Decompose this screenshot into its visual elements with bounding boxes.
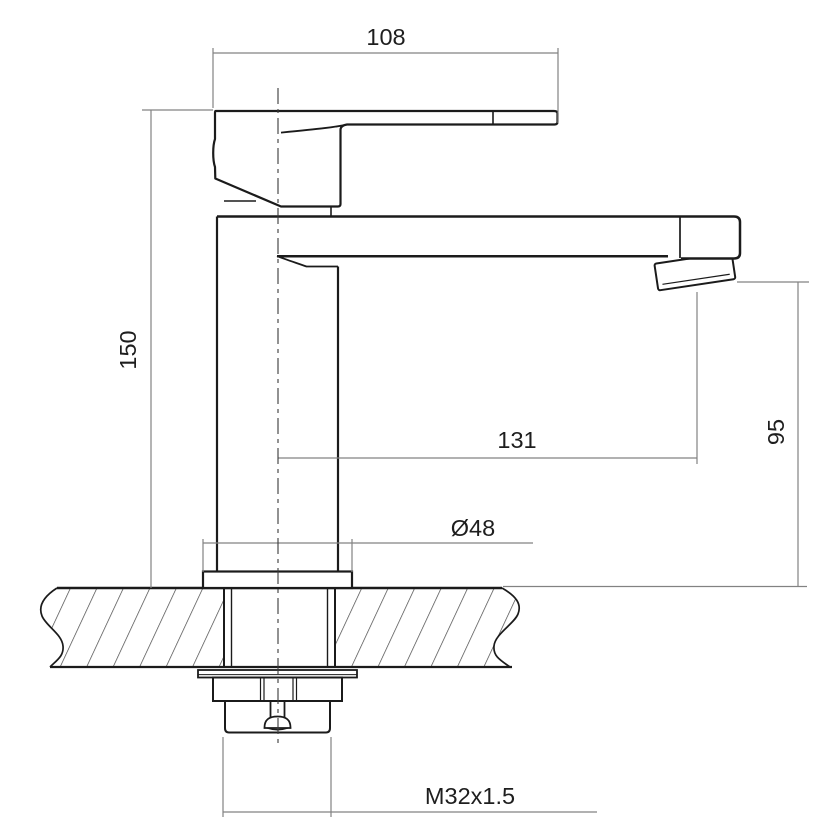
dim-body-height-label: 150 — [115, 330, 141, 369]
countertop-section — [41, 587, 520, 668]
mixer-lever-handle — [213, 111, 557, 216]
counter-hole — [224, 587, 335, 668]
dim-spout-height-label: 95 — [763, 419, 789, 445]
faucet-dimension-diagram: 108 150 131 95 Ø48 M32x1.5 — [0, 0, 840, 840]
dim-thread-size-label: M32x1.5 — [425, 783, 515, 809]
dim-base-diameter-label: Ø48 — [451, 515, 495, 541]
dim-lever-width-label: 108 — [366, 24, 405, 50]
technical-drawing-canvas: 108 150 131 95 Ø48 M32x1.5 — [0, 0, 840, 840]
handle-outline — [213, 111, 557, 207]
dim-spout-reach-label: 131 — [497, 427, 536, 453]
